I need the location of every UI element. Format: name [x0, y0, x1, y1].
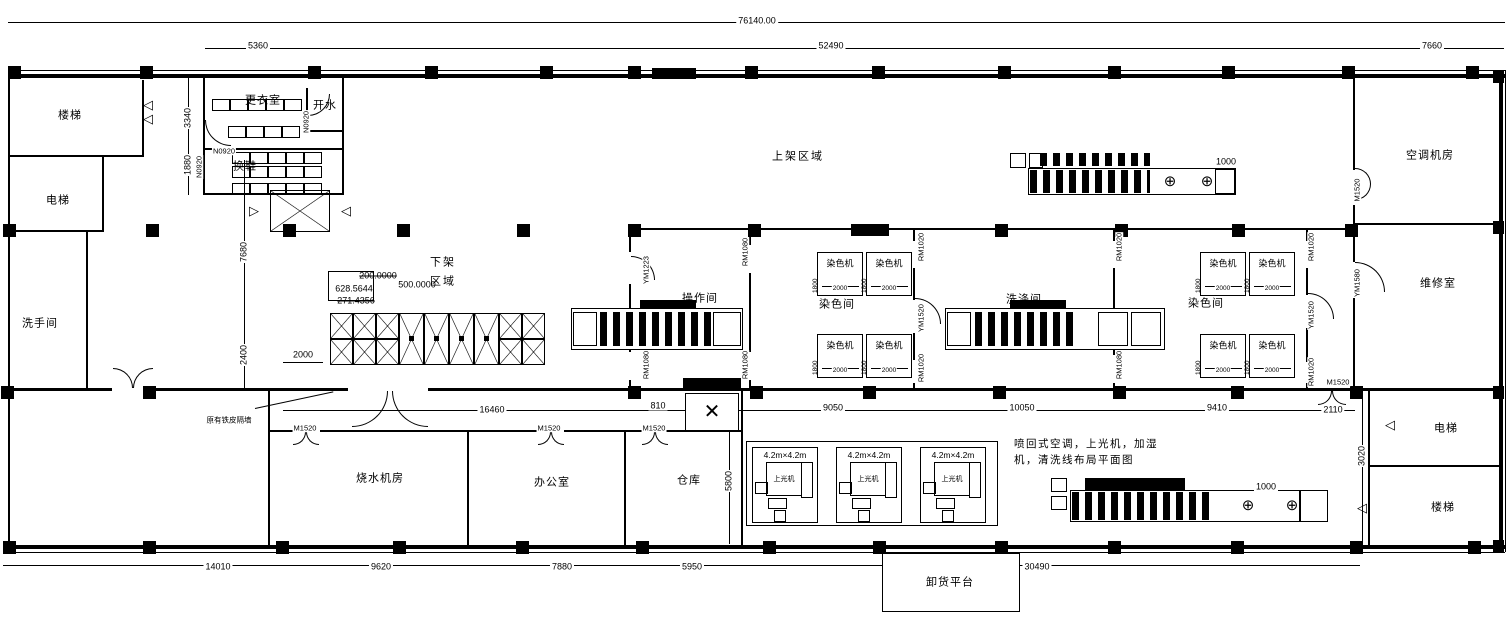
dye-machine-width: 2000 — [832, 285, 848, 292]
glazing-machine-label: 上光机 — [934, 462, 970, 496]
room-office: 办公室 — [534, 478, 570, 489]
door-m1520-c: M1520 — [642, 424, 667, 432]
door-m1520-a: M1520 — [293, 424, 318, 432]
machine-box — [573, 312, 597, 346]
dim-52490: 52490 — [816, 42, 845, 51]
dim-2110: 2110 — [1321, 406, 1344, 415]
wall — [3, 545, 1505, 549]
room-warehouse: 仓库 — [677, 476, 701, 487]
dim-total-width: 76140.00 — [736, 17, 778, 26]
column — [1231, 386, 1244, 399]
dim-16460: 16460 — [477, 406, 506, 415]
platform-accessory-box — [852, 498, 871, 509]
column — [425, 66, 438, 79]
column — [1222, 66, 1235, 79]
elevator-shaft-cross: ✕ — [704, 402, 721, 422]
machine-box — [1098, 312, 1128, 346]
locker-cell — [268, 166, 286, 178]
dim-1880: 1880 — [184, 154, 193, 176]
wall — [3, 552, 1505, 553]
door-rm1080-d: RM1080 — [1115, 350, 1123, 380]
dye-machine-width: 2000 — [881, 367, 897, 374]
frame-cell — [330, 313, 353, 339]
wall — [913, 268, 915, 300]
machine-unit-core — [484, 336, 489, 341]
machine-box — [713, 312, 741, 346]
frame-cell — [522, 339, 545, 365]
frame-cell — [353, 313, 376, 339]
platform-accessory-box — [936, 498, 955, 509]
wall — [1353, 78, 1355, 170]
machine-box — [1010, 153, 1026, 168]
locker-cell — [286, 152, 304, 164]
door-swing-icon — [205, 120, 231, 146]
column — [636, 541, 649, 554]
door-m1520-e: M1520 — [1353, 178, 1361, 203]
wall — [428, 388, 1356, 391]
machine-dial-icon: ⊕ — [1286, 496, 1299, 514]
calc-271: 271.4356 — [337, 297, 375, 306]
wall — [913, 333, 915, 360]
annotation-leader-line — [255, 391, 333, 409]
dye-machine: 染色机18002000 — [1249, 252, 1295, 296]
door-swing-icon — [538, 432, 551, 445]
locker-cell — [264, 126, 282, 138]
dye-machine-label: 染色机 — [1258, 339, 1285, 352]
column — [748, 224, 761, 237]
dim-30490: 30490 — [1022, 563, 1051, 572]
room-dye-1: 染色间 — [819, 300, 855, 311]
wall — [1368, 391, 1370, 545]
stair-mark-icon: ◁ — [143, 111, 153, 127]
column — [750, 386, 763, 399]
frame-cell — [376, 313, 399, 339]
wall — [1353, 223, 1501, 225]
room-washing: 洗涤间 — [1006, 295, 1042, 306]
room-elevator-right: 电梯 — [1434, 424, 1458, 435]
dim-2400: 2400 — [240, 344, 249, 366]
dye-machine-height: 1800 — [1195, 279, 1202, 293]
frame-cell — [522, 313, 545, 339]
column — [140, 66, 153, 79]
column — [3, 224, 16, 237]
wall — [8, 230, 104, 232]
door-ym1520-a: YM1520 — [917, 303, 925, 333]
calc-200: 200.0000 — [359, 272, 397, 281]
dim-14010: 14010 — [203, 563, 232, 572]
platform-box-size: 4.2m×4.2m — [932, 450, 975, 460]
dye-machine-width: 2000 — [881, 285, 897, 292]
door-swing-icon — [1332, 391, 1346, 405]
dye-machine-label: 染色机 — [1209, 257, 1236, 270]
dye-machine-label: 染色机 — [875, 257, 902, 270]
wall — [467, 430, 469, 545]
platform-box: 4.2m×4.2m上光机 — [836, 447, 902, 523]
dim-line — [205, 48, 1504, 49]
dye-machine-label: 染色机 — [875, 339, 902, 352]
dye-machine-label: 染色机 — [1258, 257, 1285, 270]
column — [1345, 224, 1358, 237]
locker-cell — [250, 183, 268, 195]
machine-box — [947, 312, 971, 346]
dim-10050: 10050 — [1007, 404, 1036, 413]
machine-dial-icon: ⊕ — [1164, 172, 1177, 190]
room-changing: 更衣室 — [245, 96, 281, 107]
door-swing-icon — [352, 391, 388, 427]
door-rm1020-b: RM1020 — [1115, 232, 1123, 262]
wall — [749, 273, 751, 352]
door-rm1020-a: RM1020 — [917, 232, 925, 262]
column — [1493, 386, 1504, 399]
column — [1493, 70, 1504, 83]
column — [143, 541, 156, 554]
area-label-upper-rack: 上架区域 — [772, 152, 824, 163]
layout-note-line1: 喷回式空调，上光机，加湿 — [1014, 436, 1158, 452]
dye-machine: 染色机18002000 — [1249, 334, 1295, 378]
column — [397, 224, 410, 237]
calc-628: 628.5644 — [335, 285, 373, 294]
stair-mark-icon: ◁ — [1357, 500, 1367, 516]
dim-7880: 7880 — [550, 563, 574, 572]
wall — [320, 430, 538, 432]
wall — [102, 157, 104, 232]
machine-box — [1051, 478, 1067, 492]
platform-accessory-box — [942, 510, 954, 522]
column — [745, 66, 758, 79]
machine-box — [1215, 169, 1235, 194]
locker-cell — [232, 183, 250, 195]
door-swing-icon — [392, 391, 428, 427]
room-shoe-change: 换鞋 — [233, 162, 257, 173]
column — [1231, 541, 1244, 554]
machine-unit-core — [409, 336, 414, 341]
room-operation: 操作间 — [682, 294, 718, 305]
platform-box: 4.2m×4.2m上光机 — [920, 447, 986, 523]
column — [628, 386, 641, 399]
frame-cell — [376, 339, 399, 365]
door-rm1020-d: RM1020 — [1307, 357, 1315, 387]
platform-accessory-box — [839, 482, 852, 494]
dim-5360: 5360 — [246, 42, 270, 51]
column — [3, 541, 16, 554]
column — [1108, 66, 1121, 79]
column — [998, 66, 1011, 79]
locker-cell — [284, 99, 302, 111]
wall — [1353, 388, 1501, 391]
room-stairs-top-left: 楼梯 — [58, 111, 82, 122]
door-swing-icon — [113, 368, 133, 388]
dye-machine-height: 1800 — [1244, 361, 1251, 375]
door-swing-icon — [293, 432, 306, 445]
platform-accessory-box — [858, 510, 870, 522]
machine-cap — [1085, 478, 1185, 490]
wall — [741, 390, 743, 545]
platform-accessory-box — [768, 498, 787, 509]
machine-unit-core — [459, 336, 464, 341]
column — [146, 224, 159, 237]
wall — [1353, 298, 1355, 388]
dye-machine-height: 1800 — [861, 279, 868, 293]
dye-machine-height: 1800 — [1244, 279, 1251, 293]
door-swing-icon — [1318, 391, 1332, 405]
door-rm1020-c: RM1020 — [1307, 232, 1315, 262]
column — [8, 66, 21, 79]
dim-7660: 7660 — [1420, 42, 1444, 51]
wall — [8, 70, 10, 548]
door-m1520-d: M1520 — [1326, 378, 1351, 386]
column — [1350, 541, 1363, 554]
frame-cell — [330, 339, 353, 365]
room-stairs-right: 楼梯 — [1431, 503, 1455, 514]
frame-cell — [499, 339, 522, 365]
machine-box — [1051, 496, 1067, 510]
dye-machine-label: 染色机 — [826, 339, 853, 352]
wall — [268, 390, 270, 545]
dye-machine-width: 2000 — [1264, 285, 1280, 292]
dye-machine: 染色机18002000 — [1200, 334, 1246, 378]
door-rm1020-e: RM1020 — [917, 353, 925, 383]
column — [628, 224, 641, 237]
wall — [624, 430, 626, 545]
column — [1468, 541, 1481, 554]
column — [1466, 66, 1479, 79]
frame-cell — [499, 313, 522, 339]
locker-cell — [268, 152, 286, 164]
room-hot-water: 开水 — [313, 101, 337, 112]
door-swing-icon — [642, 432, 655, 445]
platform-accessory-box — [969, 462, 981, 498]
wall — [342, 78, 344, 195]
locker-cell — [282, 126, 300, 138]
locker-cell — [268, 183, 286, 195]
column — [995, 224, 1008, 237]
platform-accessory-box — [774, 510, 786, 522]
floor-plan: 上架区域 下架 区域 喷回式空调，上光机，加湿 机，清洗线布局平面图 原有铁皮隔… — [0, 0, 1512, 638]
door-rm1080-b: RM1080 — [642, 350, 650, 380]
dim-5800: 5800 — [725, 470, 734, 492]
platform-accessory-box — [923, 482, 936, 494]
column — [1108, 541, 1121, 554]
column — [516, 541, 529, 554]
glazing-machine-label: 上光机 — [850, 462, 886, 496]
door-ym1520-b: YM1520 — [1307, 300, 1315, 330]
machine-conveyor — [1040, 153, 1150, 166]
dim-7680: 7680 — [240, 241, 249, 263]
locker-cell — [286, 183, 304, 195]
dim-2000: 2000 — [291, 351, 315, 360]
door-swing-icon — [306, 432, 319, 445]
column — [1232, 224, 1245, 237]
dye-machine: 染色机18002000 — [817, 252, 863, 296]
layout-note-line2: 机，清洗线布局平面图 — [1014, 452, 1158, 468]
door-n0920-b: N0920 — [195, 155, 203, 179]
dye-machine: 染色机18002000 — [866, 334, 912, 378]
column — [628, 66, 641, 79]
dye-machine-width: 2000 — [1215, 367, 1231, 374]
dye-machine: 染色机18002000 — [817, 334, 863, 378]
wall — [1368, 465, 1501, 467]
dim-9050: 9050 — [821, 404, 845, 413]
door-m1520-b: M1520 — [537, 424, 562, 432]
dye-machine: 染色机18002000 — [866, 252, 912, 296]
machine-cap — [683, 378, 741, 391]
machine-conveyor — [600, 312, 712, 346]
column — [851, 224, 889, 236]
platform-accessory-box — [885, 462, 897, 498]
door-swing-icon — [551, 432, 564, 445]
column — [276, 541, 289, 554]
locker-cell — [304, 152, 322, 164]
wall — [630, 228, 1354, 230]
column — [1113, 386, 1126, 399]
partition-annotation: 原有铁皮隔墙 — [207, 416, 252, 424]
wall — [913, 228, 915, 241]
door-ym1580: YM1580 — [1353, 268, 1361, 298]
dye-machine-width: 2000 — [832, 367, 848, 374]
dye-machine: 染色机18002000 — [1200, 252, 1246, 296]
platform-unload: 卸货平台 — [926, 578, 974, 589]
door-swing-icon — [655, 432, 668, 445]
platform-box-size: 4.2m×4.2m — [764, 450, 807, 460]
wall — [8, 155, 144, 157]
wall — [86, 232, 88, 388]
arrow-right-icon: ▷ — [249, 203, 259, 219]
dim-3340: 3340 — [184, 107, 193, 129]
locker-cell — [304, 166, 322, 178]
platform-accessory-box — [801, 462, 813, 498]
door-rm1080-a: RM1080 — [741, 237, 749, 267]
machine-unit-core — [434, 336, 439, 341]
dim-9620: 9620 — [369, 563, 393, 572]
locker-cell — [246, 126, 264, 138]
wall — [270, 430, 293, 432]
platform-accessory-box — [755, 482, 768, 494]
machine-box — [1131, 312, 1161, 346]
dim-line — [283, 362, 323, 363]
dim-5950: 5950 — [680, 563, 704, 572]
door-ym1223: YM1223 — [642, 255, 650, 285]
area-label-lower-rack-line1: 下架 — [430, 258, 456, 269]
room-ac: 空调机房 — [1406, 151, 1454, 162]
column — [540, 66, 553, 79]
machine-conveyor — [1072, 492, 1212, 520]
dim-9410: 9410 — [1205, 404, 1229, 413]
air-shower — [270, 190, 330, 232]
dye-machine-width: 2000 — [1215, 285, 1231, 292]
glazing-machine-label: 上光机 — [766, 462, 802, 496]
dye-machine-height: 1800 — [812, 279, 819, 293]
arrow-left-icon: ◁ — [341, 203, 351, 219]
wall — [564, 430, 642, 432]
machine-conveyor — [1030, 170, 1150, 193]
dim-3020: 3020 — [1358, 445, 1367, 467]
platform-box: 4.2m×4.2m上光机 — [752, 447, 818, 523]
layout-note: 喷回式空调，上光机，加湿 机，清洗线布局平面图 — [1014, 436, 1158, 469]
locker-cell — [304, 183, 322, 195]
column — [308, 66, 321, 79]
locker-cell — [286, 166, 304, 178]
column — [763, 541, 776, 554]
dim-1000-top: 1000 — [1214, 158, 1238, 167]
dye-machine-width: 2000 — [1264, 367, 1280, 374]
column — [393, 541, 406, 554]
column — [1493, 540, 1504, 553]
platform-box-size: 4.2m×4.2m — [848, 450, 891, 460]
room-dye-2: 染色间 — [1188, 299, 1224, 310]
room-maintenance: 维修室 — [1420, 279, 1456, 290]
dim-1000-bottom: 1000 — [1254, 483, 1278, 492]
dim-line — [283, 410, 1355, 411]
dim-810: 810 — [648, 402, 667, 411]
room-elevator-left: 电梯 — [46, 196, 70, 207]
stair-mark-icon: ◁ — [1385, 417, 1395, 433]
dye-machine-height: 1800 — [861, 361, 868, 375]
column — [652, 68, 696, 79]
calc-500: 500.0000 — [398, 281, 436, 290]
door-rm1080-c: RM1080 — [741, 350, 749, 380]
column — [872, 66, 885, 79]
column — [863, 386, 876, 399]
door-n0920-a: N0920 — [212, 147, 236, 155]
wall — [1499, 70, 1503, 553]
dim-line — [188, 78, 189, 195]
column — [1493, 221, 1504, 234]
machine-conveyor — [975, 312, 1075, 346]
door-swing-icon — [133, 368, 153, 388]
machine-dial-icon: ⊕ — [1242, 496, 1255, 514]
wall — [1306, 268, 1308, 295]
machine-box — [1300, 490, 1328, 522]
wall — [306, 130, 344, 132]
machine-dial-icon: ⊕ — [1201, 172, 1214, 190]
column — [1342, 66, 1355, 79]
wall — [8, 388, 112, 391]
dye-machine-height: 1800 — [1195, 361, 1202, 375]
locker-cell — [212, 99, 230, 111]
dye-machine-label: 染色机 — [826, 257, 853, 270]
dye-machine-height: 1800 — [812, 361, 819, 375]
frame-cell — [353, 339, 376, 365]
dye-machine-label: 染色机 — [1209, 339, 1236, 352]
column — [1350, 386, 1363, 399]
column — [517, 224, 530, 237]
column — [993, 386, 1006, 399]
door-n0920-c: N0920 — [302, 110, 310, 134]
column — [1, 386, 14, 399]
room-washroom: 洗手间 — [22, 319, 58, 330]
room-boiler: 烧水机房 — [356, 474, 404, 485]
wall — [1505, 70, 1506, 552]
wall — [203, 78, 205, 195]
wall — [146, 388, 348, 391]
